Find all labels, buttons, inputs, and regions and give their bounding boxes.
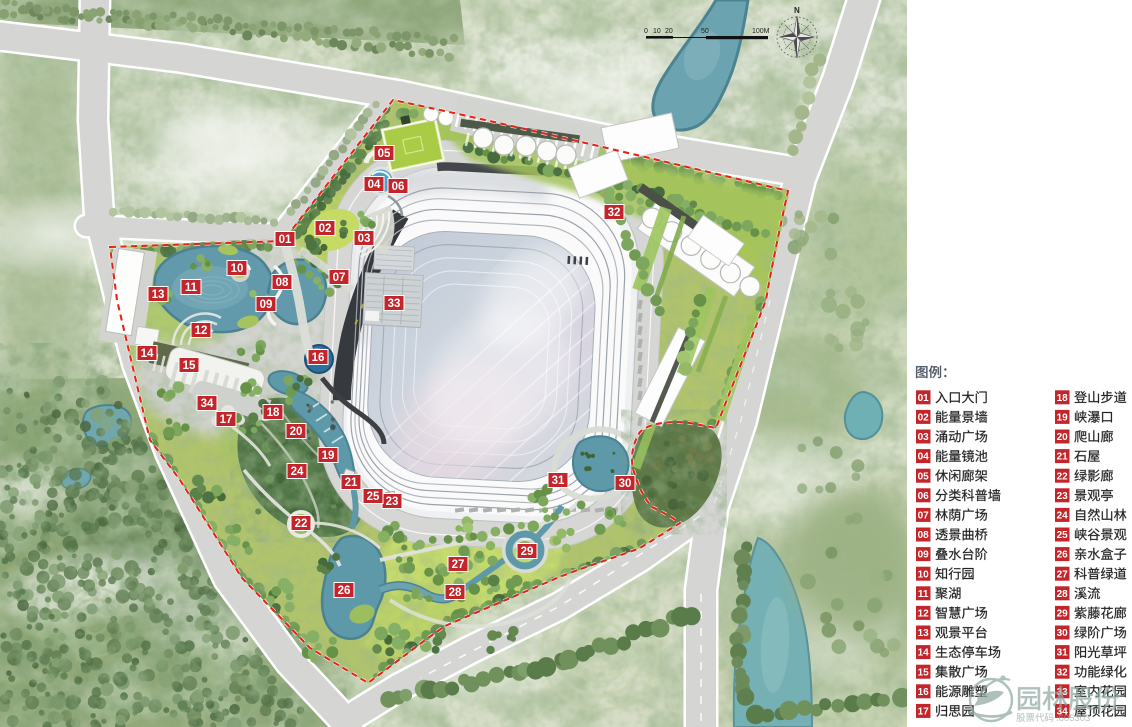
svg-text:15: 15 [183, 360, 196, 372]
svg-text:12: 12 [195, 325, 208, 337]
svg-text:15: 15 [918, 667, 930, 678]
svg-text:25: 25 [1057, 530, 1069, 541]
svg-text:21: 21 [1057, 452, 1069, 463]
svg-text:32: 32 [1057, 667, 1069, 678]
svg-text:30: 30 [1057, 628, 1069, 639]
svg-text:01: 01 [918, 393, 930, 404]
svg-text:N: N [794, 6, 800, 15]
svg-text:06: 06 [918, 491, 930, 502]
svg-text:14: 14 [141, 348, 154, 360]
svg-text:50: 50 [701, 28, 709, 35]
svg-text:18: 18 [267, 407, 280, 419]
svg-text:28: 28 [449, 587, 462, 599]
svg-text:04: 04 [918, 452, 930, 463]
svg-text:14: 14 [918, 648, 930, 659]
svg-text:22: 22 [1057, 471, 1069, 482]
svg-text:19: 19 [1057, 413, 1069, 424]
svg-text:02: 02 [319, 223, 332, 235]
svg-text::605303: :605303 [1056, 713, 1090, 724]
svg-text:0: 0 [644, 28, 648, 35]
svg-text:16: 16 [918, 687, 930, 698]
svg-text:23: 23 [1057, 491, 1069, 502]
svg-text:10: 10 [918, 569, 930, 580]
svg-text:05: 05 [918, 471, 930, 482]
svg-text:20: 20 [1057, 432, 1069, 443]
svg-text:10: 10 [231, 263, 244, 275]
svg-text:22: 22 [295, 518, 308, 530]
svg-text:20: 20 [290, 426, 303, 438]
svg-text:09: 09 [260, 299, 273, 311]
svg-text:26: 26 [338, 585, 351, 597]
svg-text:24: 24 [291, 466, 304, 478]
svg-text:07: 07 [333, 272, 346, 284]
svg-text:06: 06 [392, 181, 405, 193]
svg-text:100M: 100M [752, 28, 770, 35]
svg-text:28: 28 [1057, 589, 1069, 600]
svg-text:03: 03 [358, 233, 371, 245]
svg-text:21: 21 [345, 477, 358, 489]
svg-text:02: 02 [918, 413, 930, 424]
svg-text:08: 08 [918, 530, 930, 541]
svg-text:31: 31 [552, 475, 565, 487]
svg-text:31: 31 [1057, 648, 1069, 659]
svg-text:03: 03 [918, 432, 930, 443]
svg-text:27: 27 [452, 559, 465, 571]
svg-text:25: 25 [367, 491, 380, 503]
svg-text:18: 18 [1057, 393, 1069, 404]
svg-text:29: 29 [521, 546, 534, 558]
svg-text:07: 07 [918, 511, 930, 522]
svg-text:13: 13 [152, 289, 165, 301]
svg-text:13: 13 [918, 628, 930, 639]
svg-text:08: 08 [276, 277, 289, 289]
svg-text:29: 29 [1057, 609, 1069, 620]
svg-text:27: 27 [1057, 569, 1069, 580]
svg-text:19: 19 [322, 450, 335, 462]
svg-text:01: 01 [279, 234, 292, 246]
svg-text:32: 32 [608, 207, 621, 219]
svg-text:34: 34 [201, 398, 214, 410]
svg-text:24: 24 [1057, 511, 1069, 522]
svg-text:17: 17 [220, 414, 233, 426]
svg-text:23: 23 [386, 496, 399, 508]
svg-text:16: 16 [312, 352, 325, 364]
svg-text:33: 33 [388, 298, 401, 310]
svg-text:10: 10 [653, 28, 661, 35]
svg-text:20: 20 [665, 28, 673, 35]
svg-text:26: 26 [1057, 550, 1069, 561]
svg-text:04: 04 [368, 179, 381, 191]
svg-text:12: 12 [918, 609, 930, 620]
svg-text:11: 11 [185, 282, 198, 294]
svg-text:09: 09 [918, 550, 930, 561]
svg-text:30: 30 [619, 478, 632, 490]
svg-text:05: 05 [378, 148, 391, 160]
svg-text:17: 17 [918, 707, 930, 718]
svg-text:11: 11 [918, 589, 929, 600]
